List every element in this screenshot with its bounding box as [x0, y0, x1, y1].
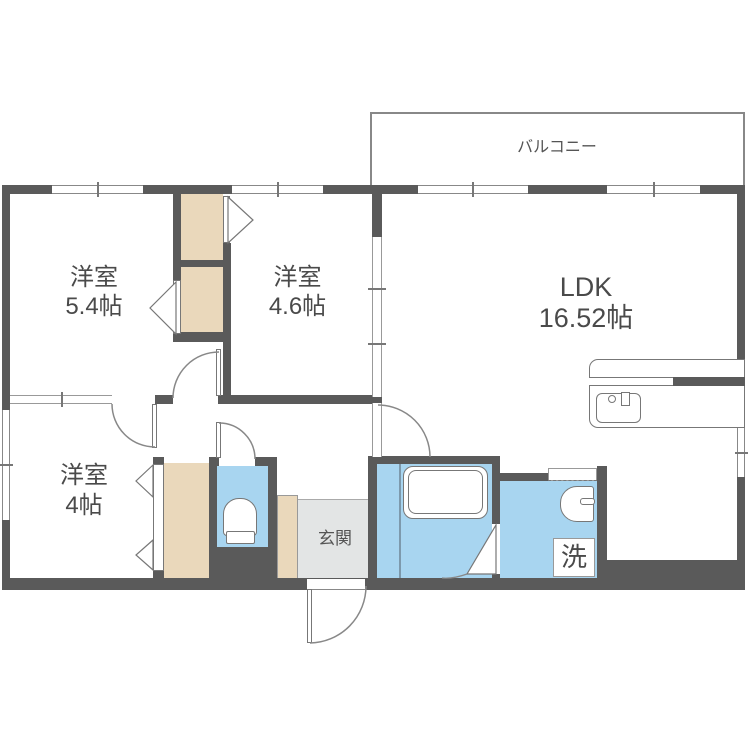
bedroom3-size: 4帖	[19, 491, 149, 521]
door-swing-layer	[0, 0, 750, 750]
bedroom1-label: 洋室 5.4帖	[29, 263, 159, 321]
balcony-label: バルコニー	[477, 138, 637, 157]
balcony-label-text: バルコニー	[517, 139, 597, 156]
door-arc-ldk	[378, 405, 430, 457]
bedroom3-name: 洋室	[19, 461, 149, 491]
floor-plan: 洗 バルコニー 洋室 5.4帖 洋室 4.6帖 LDK 16.52帖 洋室 4帖	[0, 0, 750, 750]
door-arc-entrance	[310, 586, 366, 643]
bath-folding-door-arc	[442, 574, 467, 578]
bedroom2-label: 洋室 4.6帖	[235, 263, 360, 321]
bath-folding-door	[467, 525, 496, 574]
entrance-label: 玄関	[298, 529, 372, 549]
door-arc-bedroom3	[112, 404, 155, 447]
closet-folding-door-icon	[136, 540, 153, 570]
ldk-name: LDK	[490, 272, 682, 303]
bedroom2-name: 洋室	[235, 263, 360, 292]
ldk-size: 16.52帖	[490, 303, 682, 334]
bedroom2-size: 4.6帖	[235, 292, 360, 321]
bedroom3-label: 洋室 4帖	[19, 461, 149, 521]
bedroom1-name: 洋室	[29, 263, 159, 292]
entrance-label-text: 玄関	[318, 529, 352, 548]
door-arc-bedroom1	[173, 352, 219, 398]
ldk-label: LDK 16.52帖	[490, 272, 682, 334]
closet-folding-door-icon	[228, 197, 253, 243]
door-arc-toilet	[219, 423, 255, 459]
bedroom1-size: 5.4帖	[29, 292, 159, 321]
